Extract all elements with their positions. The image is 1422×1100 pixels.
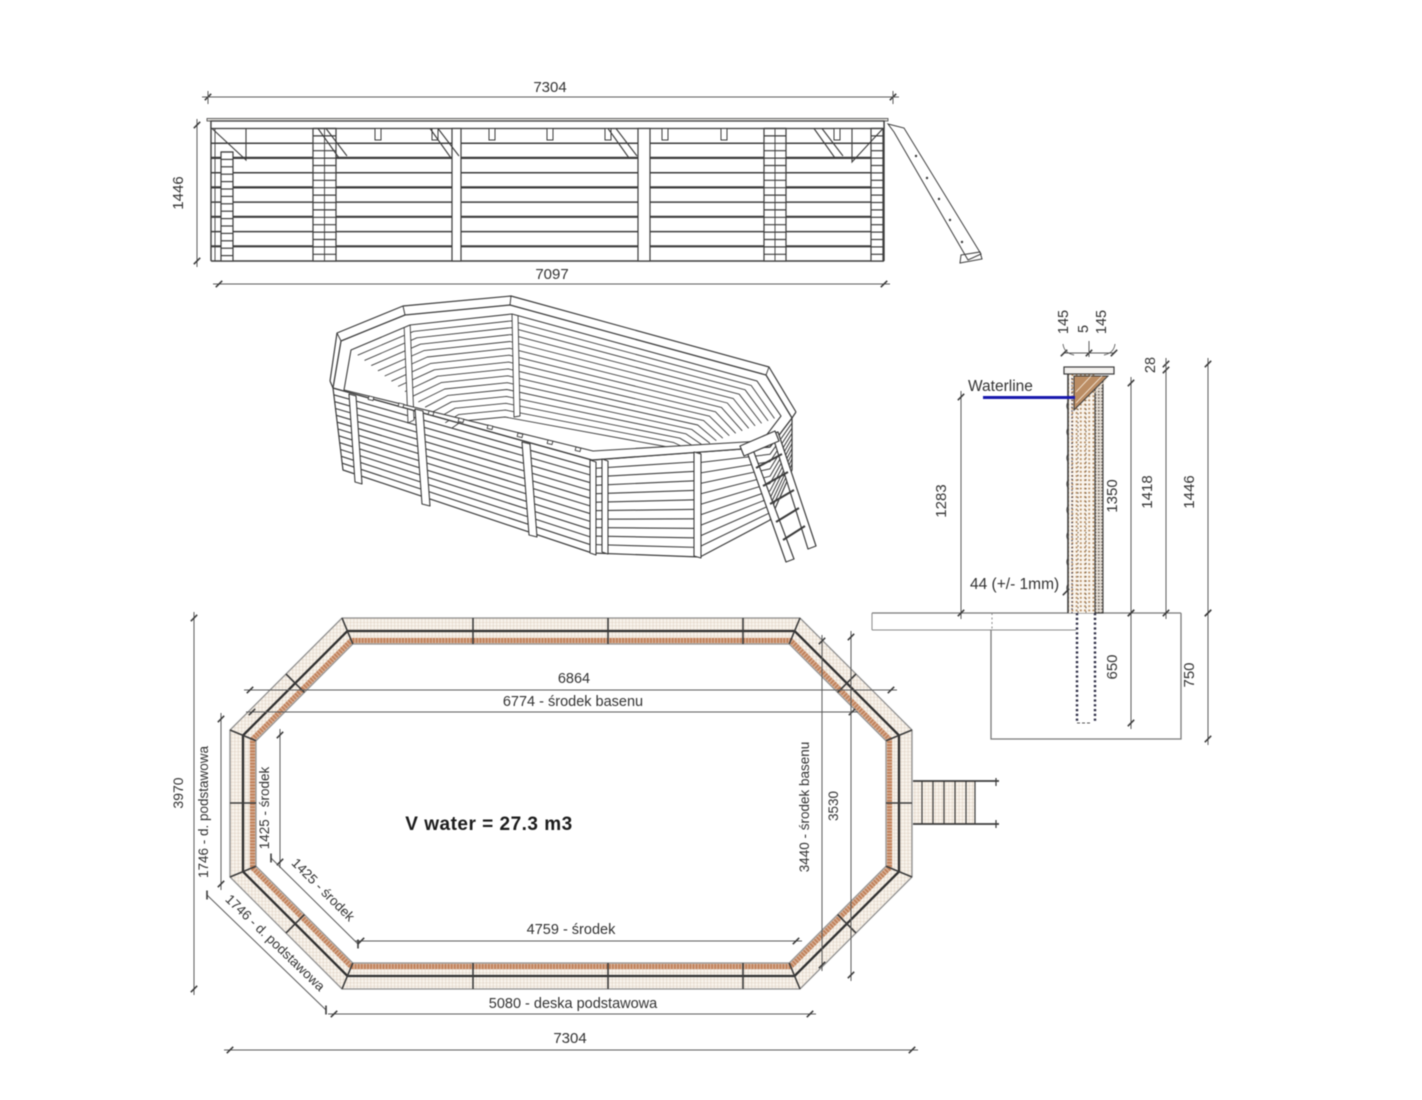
svg-text:650: 650 (1104, 654, 1121, 679)
svg-text:5: 5 (1076, 325, 1092, 333)
svg-text:6864: 6864 (558, 671, 590, 687)
svg-text:7304: 7304 (533, 79, 566, 96)
svg-text:145: 145 (1094, 310, 1110, 334)
svg-text:3440 - środek basenu: 3440 - środek basenu (797, 742, 812, 873)
svg-text:1350: 1350 (1104, 479, 1121, 512)
svg-text:1418: 1418 (1139, 475, 1156, 508)
svg-text:6774 - środek basenu: 6774 - środek basenu (503, 694, 643, 710)
svg-text:3970: 3970 (170, 777, 186, 808)
svg-text:3530: 3530 (826, 791, 841, 821)
svg-text:7304: 7304 (553, 1030, 586, 1047)
svg-text:145: 145 (1056, 310, 1072, 334)
svg-text:28: 28 (1143, 357, 1159, 373)
svg-text:7097: 7097 (535, 266, 568, 283)
svg-text:Waterline: Waterline (968, 378, 1033, 395)
svg-text:1746 - d. podstawowa: 1746 - d. podstawowa (196, 745, 211, 878)
svg-text:750: 750 (1181, 662, 1198, 687)
svg-text:44 (+/- 1mm): 44 (+/- 1mm) (970, 576, 1059, 593)
svg-text:4759 - środek: 4759 - środek (527, 922, 616, 938)
svg-text:1283: 1283 (933, 484, 950, 517)
svg-text:5080 - deska podstawowa: 5080 - deska podstawowa (489, 996, 658, 1012)
svg-text:1446: 1446 (1181, 475, 1198, 508)
svg-text:1446: 1446 (170, 176, 187, 209)
svg-text:V water = 27.3 m3: V water = 27.3 m3 (405, 814, 572, 835)
svg-text:1425 - środek: 1425 - środek (257, 766, 272, 849)
